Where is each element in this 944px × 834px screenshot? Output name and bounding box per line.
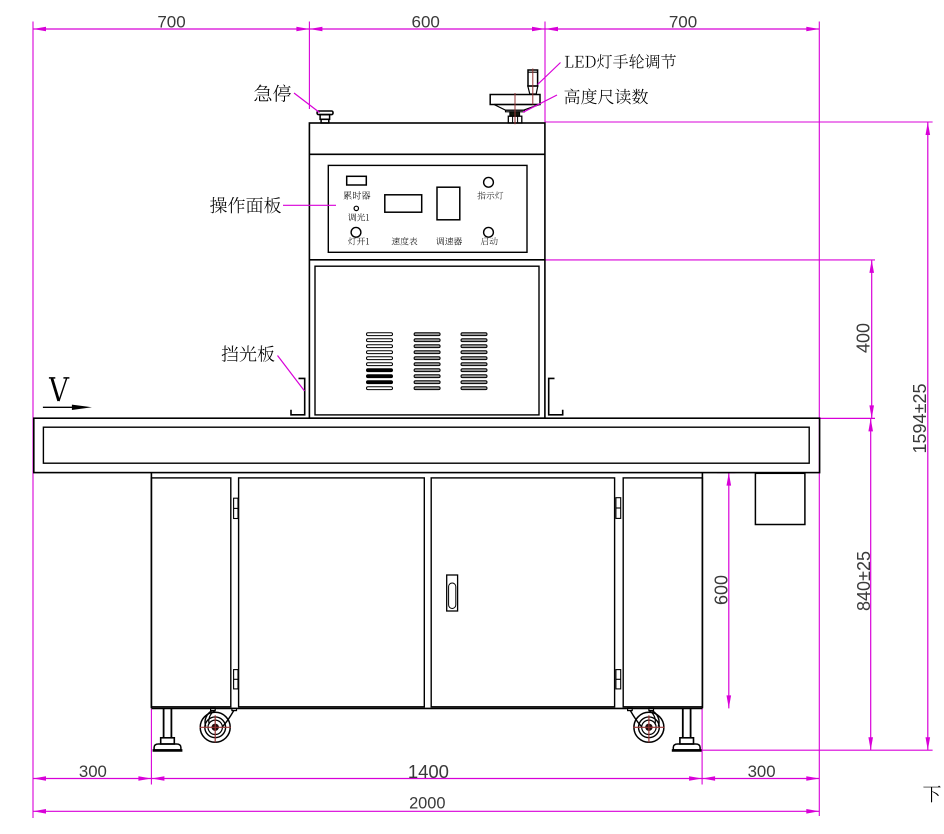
svg-text:700: 700 bbox=[669, 12, 697, 31]
svg-text:840±25: 840±25 bbox=[854, 551, 874, 611]
svg-text:300: 300 bbox=[79, 762, 107, 781]
svg-text:1594±25: 1594±25 bbox=[910, 384, 930, 454]
svg-text:1400: 1400 bbox=[408, 761, 449, 782]
svg-text:700: 700 bbox=[157, 12, 185, 31]
svg-text:600: 600 bbox=[412, 12, 440, 31]
svg-text:300: 300 bbox=[748, 762, 776, 781]
svg-text:600: 600 bbox=[712, 575, 732, 605]
svg-text:400: 400 bbox=[853, 323, 873, 353]
svg-text:2000: 2000 bbox=[409, 795, 445, 813]
